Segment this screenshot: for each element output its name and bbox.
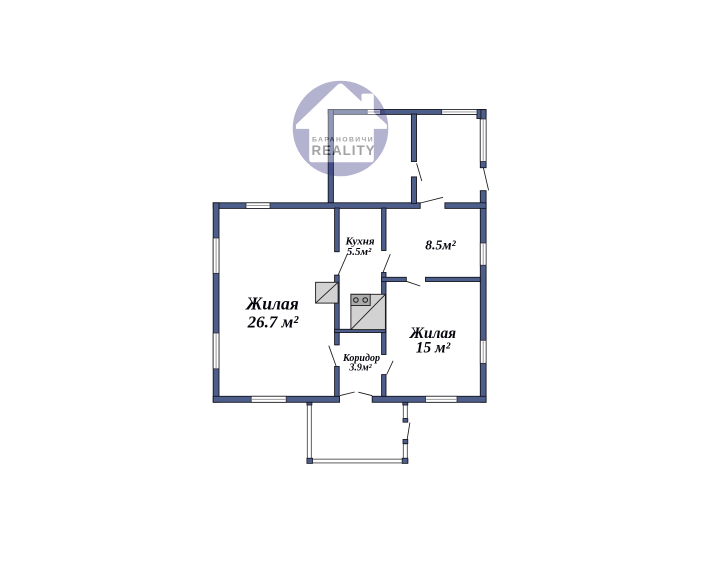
- svg-text:3.9м²: 3.9м²: [348, 363, 372, 374]
- svg-text:15 м²: 15 м²: [416, 340, 451, 357]
- svg-text:8.5м²: 8.5м²: [425, 238, 456, 253]
- svg-text:26.7 м²: 26.7 м²: [247, 313, 300, 332]
- svg-text:Жилая: Жилая: [245, 294, 299, 314]
- svg-text:5.5м²: 5.5м²: [347, 246, 372, 258]
- svg-text:REALITY: REALITY: [312, 143, 376, 158]
